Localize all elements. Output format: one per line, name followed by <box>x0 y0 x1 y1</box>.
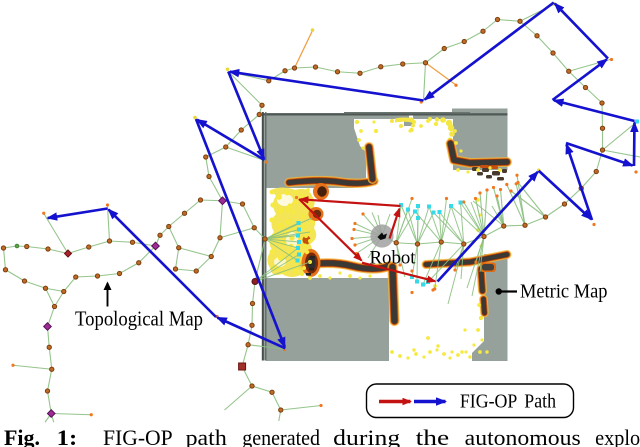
svg-text:Fig.: Fig. <box>4 425 40 447</box>
svg-text:Path: Path <box>524 392 556 413</box>
svg-text:Topological Map: Topological Map <box>75 307 203 331</box>
svg-text:FIG-OP: FIG-OP <box>460 392 518 413</box>
svg-text:path: path <box>186 425 227 447</box>
svg-text:generated: generated <box>242 425 320 447</box>
svg-text:during: during <box>333 425 400 447</box>
svg-text:Metric Map: Metric Map <box>520 281 608 303</box>
svg-text:1:: 1: <box>57 425 78 447</box>
svg-text:autonomous: autonomous <box>465 425 581 447</box>
svg-text:explo: explo <box>595 425 640 447</box>
svg-text:FIG-OP: FIG-OP <box>103 425 173 447</box>
svg-text:the: the <box>416 425 450 447</box>
svg-text:Robot: Robot <box>370 248 417 269</box>
